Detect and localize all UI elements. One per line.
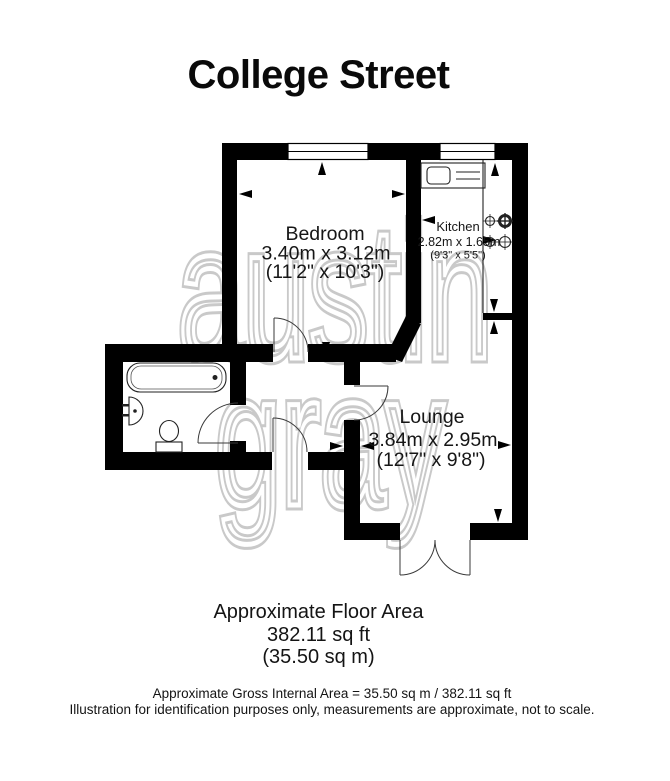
footer-disclaimer: Illustration for identification purposes…: [0, 702, 664, 718]
toilet: [156, 421, 182, 453]
kitchen-size-imperial: (9'3" x 5'5"): [430, 250, 485, 262]
wall-segment: [105, 344, 273, 362]
dim-arrow: [491, 163, 499, 176]
bathroom-fixtures: [122, 363, 226, 452]
footer: Approximate Gross Internal Area = 35.50 …: [0, 686, 664, 717]
bedroom-size-imperial: (11'2" x 10'3"): [266, 261, 385, 283]
dim-arrow: [498, 441, 511, 449]
area-summary-sqft: 382.11 sq ft: [0, 624, 637, 647]
kitchen-size-metric: 2.82m x 1.65m: [418, 235, 501, 249]
wall-segment: [105, 344, 123, 470]
wall-segment: [344, 523, 400, 540]
bathtub-tap-dot: [213, 375, 218, 380]
wall-segment: [470, 523, 528, 540]
wall-segment: [368, 143, 440, 160]
wall-segment: [222, 143, 237, 362]
area-summary-sqm: (35.50 sq m): [0, 646, 637, 669]
wall-segment: [483, 313, 512, 320]
area-summary: Approximate Floor Area 382.11 sq ft (35.…: [0, 601, 637, 669]
wall-segment: [344, 362, 360, 385]
bathtub: [127, 363, 226, 392]
dim-arrow: [318, 162, 326, 175]
kitchen-label: Kitchen: [436, 219, 479, 234]
area-summary-heading: Approximate Floor Area: [0, 601, 637, 624]
bedroom-window: [288, 144, 368, 160]
wash-basin: [122, 397, 143, 425]
floor-plan-page: College Street austin austin gray gray: [0, 0, 670, 781]
lounge-label: Lounge: [399, 406, 464, 428]
kitchen-window: [440, 144, 495, 160]
kitchen-sink: [421, 163, 485, 188]
wall-segment: [344, 420, 360, 540]
wall-segment: [230, 361, 246, 405]
lounge-size-metric: 3.84m x 2.95m: [369, 429, 498, 451]
footer-gross-area: Approximate Gross Internal Area = 35.50 …: [0, 686, 664, 702]
wall-segment: [105, 452, 272, 470]
wall-segment: [308, 344, 396, 362]
lounge-size-imperial: (12'7" x 9'8"): [376, 449, 485, 471]
wall-segment: [512, 143, 528, 540]
dim-arrow: [494, 509, 502, 522]
